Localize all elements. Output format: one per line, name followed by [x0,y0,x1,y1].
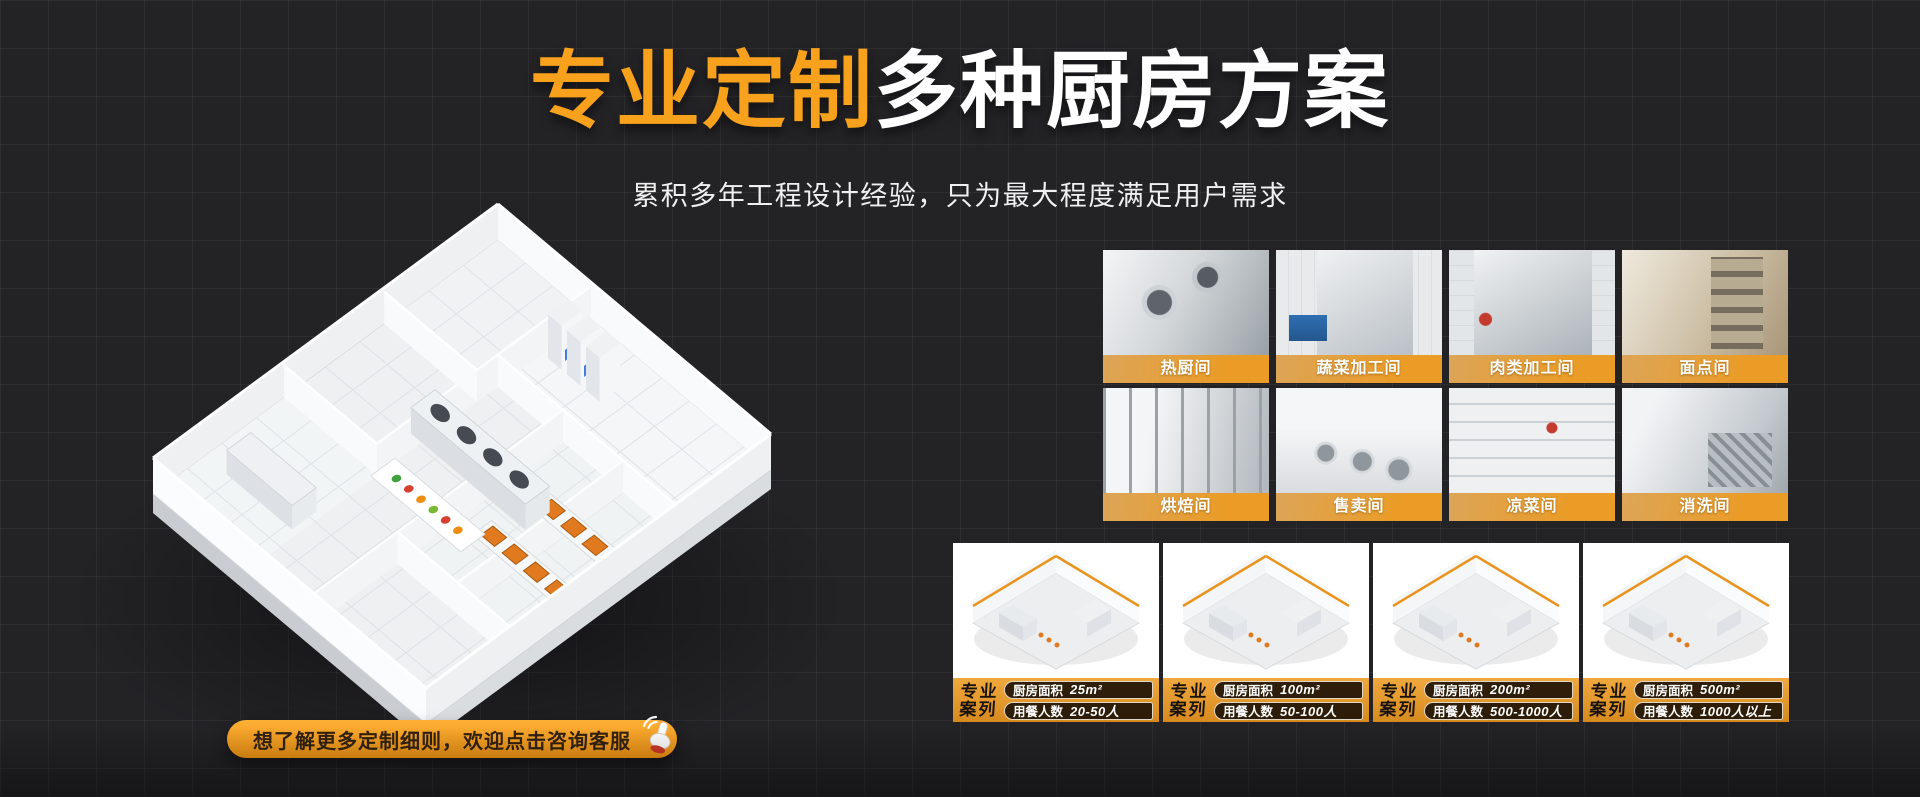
diners-stat: 用餐人数 50-100人 [1214,702,1363,720]
case-footer: 专业 案列 厨房面积 100m² 用餐人数 50-100人 [1163,678,1369,722]
click-hand-icon [635,711,681,757]
case-kitchen-illustration [1583,543,1789,678]
consult-cta-button[interactable]: 想了解更多定制细则，欢迎点击咨询客服 [227,720,677,758]
room-photo-meat-processing [1449,250,1615,355]
room-tile-label: 蔬菜加工间 [1276,355,1442,383]
room-tile: 消洗间 [1622,388,1788,521]
case-kitchen-illustration [1373,543,1579,678]
room-tile: 肉类加工间 [1449,250,1615,383]
consult-cta-label: 想了解更多定制细则，欢迎点击咨询客服 [253,725,631,754]
case-kitchen-illustration [1163,543,1369,678]
room-tile-label: 凉菜间 [1449,493,1615,521]
diners-stat: 用餐人数 500-1000人 [1424,702,1573,720]
kitchen-area-stat: 厨房面积 100m² [1214,681,1363,699]
room-tile-label: 肉类加工间 [1449,355,1615,383]
room-photo-dishwashing [1622,388,1788,493]
case-card: 专业 案列 厨房面积 25m² 用餐人数 20-50人 [953,543,1159,722]
diners-stat: 用餐人数 1000人以上 [1634,702,1783,720]
diners-stat: 用餐人数 20-50人 [1004,702,1153,720]
room-photo-hot-kitchen [1103,250,1269,355]
case-card: 专业 案列 厨房面积 500m² 用餐人数 1000人以上 [1583,543,1789,722]
case-stats: 厨房面积 25m² 用餐人数 20-50人 [1004,681,1153,720]
room-tile-label: 售卖间 [1276,493,1442,521]
room-photo-baking [1103,388,1269,493]
case-badge: 专业 案列 [959,683,999,718]
room-photo-pastry [1622,250,1788,355]
room-tile: 烘焙间 [1103,388,1269,521]
case-badge: 专业 案列 [1589,683,1629,718]
case-stats: 厨房面积 200m² 用餐人数 500-1000人 [1424,681,1573,720]
room-tile-label: 消洗间 [1622,493,1788,521]
case-footer: 专业 案列 厨房面积 200m² 用餐人数 500-1000人 [1373,678,1579,722]
room-tile: 蔬菜加工间 [1276,250,1442,383]
case-badge-line1: 专业 [960,683,999,701]
title-rest: 多种厨房方案 [874,44,1390,138]
kitchen-area-stat: 厨房面积 25m² [1004,681,1153,699]
room-photo-selling [1276,388,1442,493]
case-footer: 专业 案列 厨房面积 25m² 用餐人数 20-50人 [953,678,1159,722]
page-title: 专业定制多种厨房方案 [0,44,1920,138]
case-footer: 专业 案列 厨房面积 500m² 用餐人数 1000人以上 [1583,678,1789,722]
case-cards-row: 专业 案列 厨房面积 25m² 用餐人数 20-50人 [953,543,1789,722]
case-card: 专业 案列 厨房面积 200m² 用餐人数 500-1000人 [1373,543,1579,722]
room-tile: 面点间 [1622,250,1788,383]
title-highlight: 专业定制 [530,44,874,138]
case-stats: 厨房面积 500m² 用餐人数 1000人以上 [1634,681,1783,720]
room-tile: 凉菜间 [1449,388,1615,521]
case-badge: 专业 案列 [1379,683,1419,718]
kitchen-area-stat: 厨房面积 500m² [1634,681,1783,699]
room-tile: 热厨间 [1103,250,1269,383]
case-card: 专业 案列 厨房面积 100m² 用餐人数 50-100人 [1163,543,1369,722]
case-stats: 厨房面积 100m² 用餐人数 50-100人 [1214,681,1363,720]
room-tiles-grid: 热厨间 蔬菜加工间 肉类加工间 面点间 烘焙间 售卖间 凉菜间 消洗间 [1103,250,1788,521]
case-badge-line2: 案列 [959,700,998,718]
room-tile-label: 面点间 [1622,355,1788,383]
kitchen-area-stat: 厨房面积 200m² [1424,681,1573,699]
page-subtitle: 累积多年工程设计经验，只为最大程度满足用户需求 [0,174,1920,213]
kitchen-solutions-banner: 专业定制多种厨房方案 累积多年工程设计经验，只为最大程度满足用户需求 热厨间 蔬… [0,0,1920,797]
room-tile-label: 烘焙间 [1103,493,1269,521]
room-photo-vegetable-processing [1276,250,1442,355]
case-badge: 专业 案列 [1169,683,1209,718]
room-tile-label: 热厨间 [1103,355,1269,383]
case-kitchen-illustration [953,543,1159,678]
room-tile: 售卖间 [1276,388,1442,521]
room-photo-cold-dish [1449,388,1615,493]
